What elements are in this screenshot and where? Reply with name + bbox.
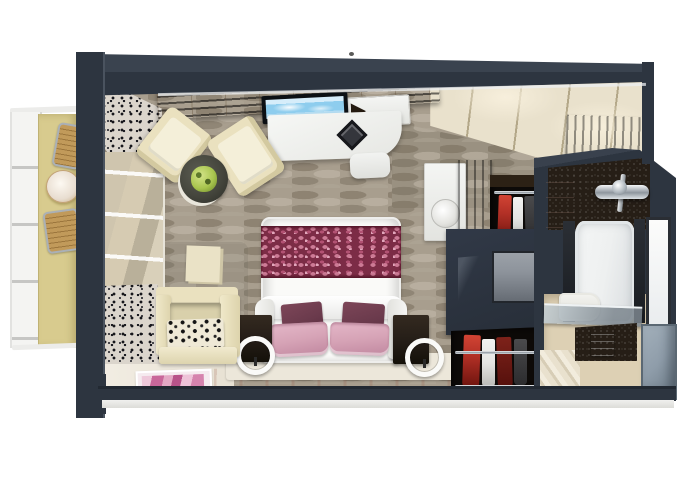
- bed-runner: [261, 226, 401, 278]
- reading-armchair: [154, 283, 240, 365]
- clothes-rail-upper: [494, 191, 541, 194]
- hand-towel: [591, 328, 614, 356]
- vanity-counter: [544, 303, 643, 326]
- garment-red-lower: [462, 335, 481, 388]
- armchair-seat-front: [159, 347, 237, 364]
- wood-cabinet: [458, 160, 492, 238]
- suite-floorplan-render: [0, 0, 680, 486]
- towel-roll: [431, 199, 460, 228]
- patio-table: [46, 170, 80, 203]
- patterned-pillow: [166, 318, 224, 350]
- wardrobe-lower: [451, 327, 545, 393]
- wall-left: [76, 52, 105, 418]
- shower-door: [646, 217, 671, 333]
- garment-white-lower: [482, 339, 495, 387]
- desk-stool: [349, 152, 390, 179]
- wall-art: [185, 245, 220, 282]
- shower-valve: [612, 180, 627, 195]
- pillow-right: [329, 322, 389, 356]
- wall-entry-right: [642, 62, 654, 164]
- garment-gray-lower: [514, 339, 527, 385]
- clothes-rail-lower-front: [455, 351, 541, 354]
- wall-bottom-face: [102, 400, 674, 408]
- potted-plant: [191, 166, 217, 192]
- pillow-left: [270, 322, 329, 358]
- ring-lamp-left: [236, 336, 275, 375]
- wall-bottom: [98, 386, 676, 401]
- balcony-glass-door: [102, 152, 165, 296]
- ring-lamp-right: [405, 338, 444, 377]
- garment-wine-lower: [496, 337, 513, 387]
- artifact-dot: [349, 52, 354, 56]
- dresser-mirror: [492, 251, 541, 303]
- balcony-rail-cap-bottom: [12, 343, 78, 350]
